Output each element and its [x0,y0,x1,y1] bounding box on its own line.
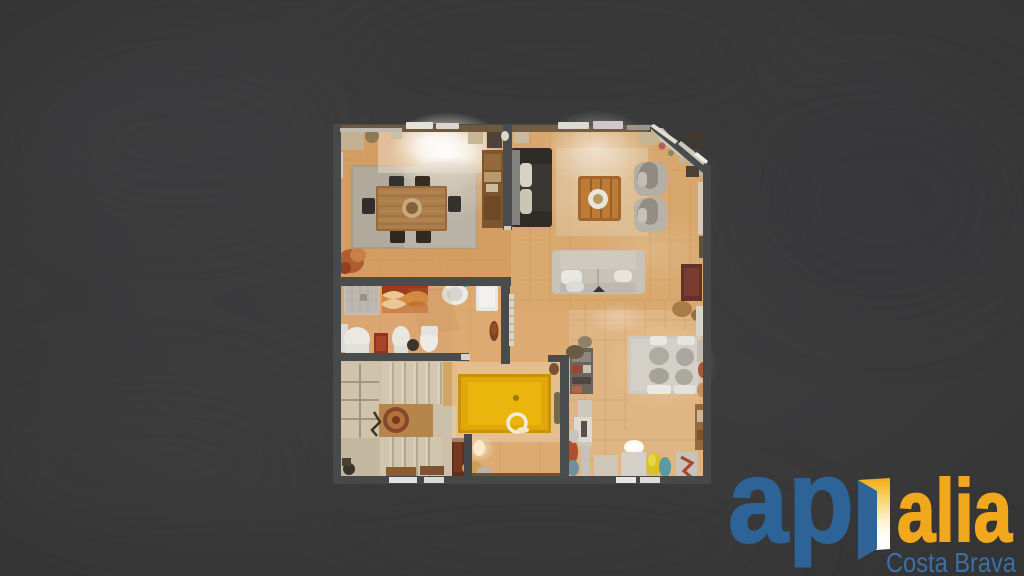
svg-text:Costa Brava: Costa Brava [886,547,1016,576]
svg-text:alia: alia [897,461,1013,560]
svg-text:ap: ap [728,435,854,568]
